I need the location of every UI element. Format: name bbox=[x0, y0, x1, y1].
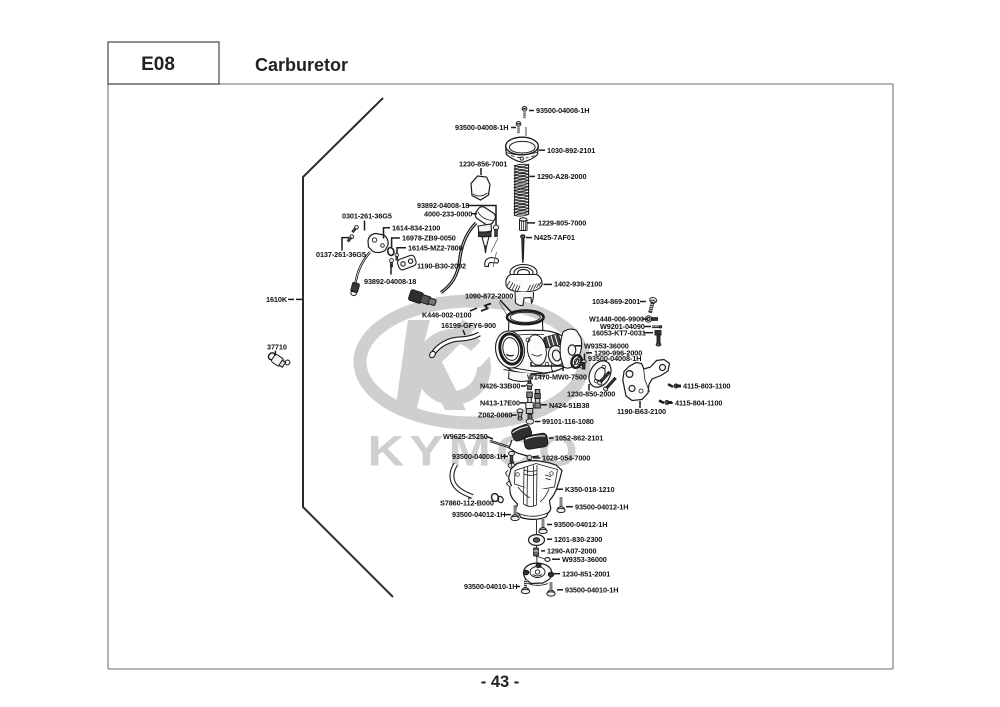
svg-text:93500-04008-1H: 93500-04008-1H bbox=[452, 452, 505, 461]
svg-text:S7860-112-B000: S7860-112-B000 bbox=[440, 499, 494, 508]
svg-text:0137-261-36G5: 0137-261-36G5 bbox=[316, 250, 366, 259]
svg-text:W9353-36000: W9353-36000 bbox=[562, 555, 607, 564]
svg-text:93500-04008-1H: 93500-04008-1H bbox=[588, 354, 641, 363]
svg-text:E08: E08 bbox=[141, 54, 175, 75]
svg-text:37710: 37710 bbox=[267, 342, 287, 351]
svg-text:N413-17E00: N413-17E00 bbox=[480, 398, 520, 407]
svg-text:4115-803-1100: 4115-803-1100 bbox=[683, 381, 730, 390]
svg-text:93500-04012-1H: 93500-04012-1H bbox=[452, 510, 505, 519]
svg-text:1052-862-2101: 1052-862-2101 bbox=[555, 434, 603, 443]
svg-text:Z062-0060: Z062-0060 bbox=[478, 411, 512, 420]
svg-text:1614-834-2100: 1614-834-2100 bbox=[392, 223, 440, 232]
svg-text:16053-KT7-0031: 16053-KT7-0031 bbox=[592, 328, 646, 337]
svg-text:1201-830-2300: 1201-830-2300 bbox=[554, 535, 602, 544]
svg-text:16145-MZ2-7800: 16145-MZ2-7800 bbox=[408, 243, 463, 252]
svg-text:1230-856-7001: 1230-856-7001 bbox=[459, 160, 507, 169]
svg-text:93500-04012-1H: 93500-04012-1H bbox=[575, 502, 628, 511]
svg-text:93500-04008-1H: 93500-04008-1H bbox=[536, 106, 589, 115]
svg-text:16978-ZB9-0050: 16978-ZB9-0050 bbox=[402, 234, 456, 243]
svg-text:- 43 -: - 43 - bbox=[481, 673, 520, 691]
svg-text:0301-261-36G5: 0301-261-36G5 bbox=[342, 212, 392, 221]
svg-text:K350-018-1210: K350-018-1210 bbox=[565, 485, 614, 494]
svg-text:1229-805-7000: 1229-805-7000 bbox=[538, 219, 586, 228]
svg-text:N426-33B00: N426-33B00 bbox=[480, 382, 520, 391]
svg-text:4115-804-1100: 4115-804-1100 bbox=[675, 398, 722, 407]
svg-text:K446-002-0100: K446-002-0100 bbox=[422, 310, 471, 319]
svg-text:93500-04010-1H: 93500-04010-1H bbox=[565, 585, 618, 594]
svg-text:1402-939-2100: 1402-939-2100 bbox=[554, 279, 602, 288]
svg-text:1610K: 1610K bbox=[266, 295, 288, 304]
svg-text:W9625-25250: W9625-25250 bbox=[443, 432, 488, 441]
svg-text:1190-B30-2002: 1190-B30-2002 bbox=[417, 262, 466, 271]
svg-text:1190-B63-2100: 1190-B63-2100 bbox=[617, 407, 666, 416]
svg-text:1230-851-2001: 1230-851-2001 bbox=[562, 569, 610, 578]
svg-text:93500-04008-1H: 93500-04008-1H bbox=[455, 123, 508, 132]
svg-text:93500-04012-1H: 93500-04012-1H bbox=[554, 520, 607, 529]
svg-text:16199-GFY6-900: 16199-GFY6-900 bbox=[441, 321, 496, 330]
svg-text:1230-850-2000: 1230-850-2000 bbox=[567, 390, 615, 399]
svg-text:1030-892-2101: 1030-892-2101 bbox=[547, 146, 595, 155]
svg-text:4000-233-0000: 4000-233-0000 bbox=[424, 209, 472, 218]
svg-text:N425-7AF01: N425-7AF01 bbox=[534, 233, 575, 242]
svg-text:1290-A28-2000: 1290-A28-2000 bbox=[537, 172, 586, 181]
svg-text:1090-872-2000: 1090-872-2000 bbox=[465, 292, 513, 301]
svg-text:99101-116-1080: 99101-116-1080 bbox=[542, 417, 594, 426]
svg-text:93500-04010-1H: 93500-04010-1H bbox=[464, 582, 517, 591]
svg-text:1034-869-2001: 1034-869-2001 bbox=[592, 297, 640, 306]
svg-text:N424-51B38: N424-51B38 bbox=[549, 401, 589, 410]
svg-text:93892-04008-18: 93892-04008-18 bbox=[364, 277, 416, 286]
svg-text:Carburetor: Carburetor bbox=[255, 55, 348, 75]
svg-text:1028-054-7000: 1028-054-7000 bbox=[542, 454, 590, 463]
svg-text:W1470-MW0-7500: W1470-MW0-7500 bbox=[527, 373, 587, 382]
